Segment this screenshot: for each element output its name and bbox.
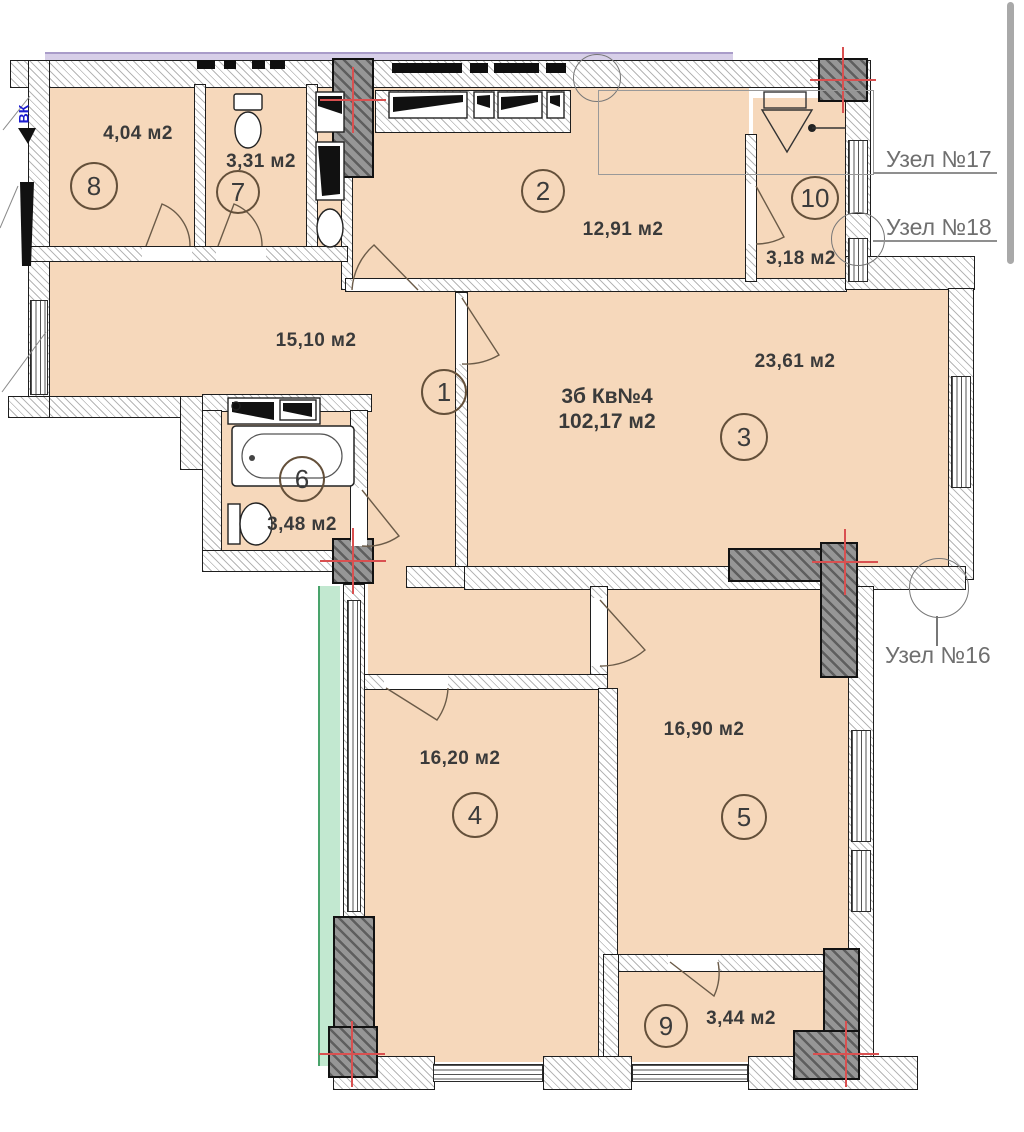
room-area-1: 15,10 м2 [276,330,357,352]
room-number: 8 [87,171,101,202]
room-circle-4: 4 [452,792,498,838]
door-opening-room5 [591,598,607,666]
wall-rooms5-9-divider [603,954,858,972]
window-room4-left [347,600,361,912]
room-number: 4 [468,800,482,831]
room-floor-8 [48,82,196,252]
node17-detail-rect [598,90,874,175]
wall-bath-top [202,394,372,412]
room-area-4: 16,20 м2 [420,748,501,770]
room-circle-7: 7 [216,170,260,214]
wall-rooms2-10-bottom [345,278,847,292]
callout-node16: Узел №16 [885,642,991,669]
door-opening-room9 [668,955,718,971]
floor-plan-canvas: 8 7 2 10 1 3 6 4 5 9 4,04 м2 3,31 м2 12,… [0,0,1024,1132]
window-bar [224,60,236,69]
scrollbar-thumb[interactable] [1007,2,1014,264]
apartment-type-label: 3б Кв№4 [561,385,652,409]
room-area-9: 3,44 м2 [706,1008,776,1030]
wall-divider-7-nook [306,84,318,258]
column-room9-b [793,1030,860,1080]
door-opening-room7 [216,247,266,261]
column-room4-a [333,916,375,1042]
column-room4-b [328,1026,378,1078]
room-floor-3 [466,290,954,572]
room-area-2: 12,91 м2 [583,219,664,241]
callout-node17: Узел №17 [886,146,992,173]
room-circle-1: 1 [421,369,467,415]
door-opening-room6 [351,488,367,546]
window-bar [197,60,215,69]
room-circle-9: 9 [644,1004,688,1048]
door-opening-room8 [142,247,192,261]
column-room3-b [820,542,858,678]
wall-divider-8-7 [194,84,206,258]
window-room5-a [851,730,871,842]
door-opening-room10 [746,184,756,244]
room-number: 9 [659,1011,673,1042]
room-number: 1 [437,377,451,408]
room-circle-10: 10 [791,176,839,220]
window-bar [392,63,462,73]
room-area-6: 3,48 м2 [267,514,337,536]
wall-hall-step [180,396,204,470]
window-bottom-1 [433,1064,543,1082]
node16-marker-circle [909,558,969,618]
door-opening-room2 [352,279,418,291]
apartment-area-label: 102,17 м2 [558,410,655,434]
duct-label: ВК [15,105,31,124]
room-number: 7 [231,177,245,208]
room-number: 10 [801,183,830,214]
room-area-10: 3,18 м2 [766,248,836,270]
room-circle-3: 3 [720,413,768,461]
room-circle-6: 6 [279,456,325,502]
window-room3 [951,376,971,488]
room-area-8: 4,04 м2 [103,123,173,145]
callout-underline [873,172,997,174]
window-bar [252,60,265,69]
window-bar [270,60,285,69]
door-opening-room4 [384,675,448,689]
room-area-3: 23,61 м2 [755,351,836,373]
column-top-left [332,58,374,178]
room-circle-2: 2 [521,169,565,213]
room-number: 2 [536,176,550,207]
room-area-7: 3,31 м2 [226,151,296,173]
wall-room3-bottom [464,566,966,590]
window-left-strip [30,300,48,395]
wall-hall-foot [8,396,50,418]
room-number: 3 [737,422,751,453]
window-bottom-2 [632,1064,748,1082]
callout-node18: Узел №18 [886,214,992,241]
wall-bath-left [202,410,222,572]
room-circle-8: 8 [70,162,118,210]
room-floor-1b [368,400,458,572]
room-area-5: 16,90 м2 [664,719,745,741]
wall-bath-bottom [202,550,348,572]
column-room3-a [728,548,824,582]
door-opening-room3 [456,298,467,364]
wall-hall-bottom [28,396,190,418]
room-floor-4 [363,688,603,1062]
wall-corridor-seg [406,566,466,588]
callout-underline [873,240,997,242]
room-circle-5: 5 [721,794,767,840]
room-number: 5 [737,802,751,833]
window-room5-b [851,850,871,912]
node18-marker-circle [831,212,885,266]
wall-room2-left [341,176,353,290]
wall-left-upper [28,60,50,256]
room-floor-1d [368,586,594,680]
room-floor-5 [608,586,852,958]
wall-bottom-2 [543,1056,632,1090]
window-bar [546,63,566,73]
window-bar [494,63,539,73]
window-bar [470,63,488,73]
kitchen-counter-band [375,90,571,133]
room-number: 6 [295,464,309,495]
